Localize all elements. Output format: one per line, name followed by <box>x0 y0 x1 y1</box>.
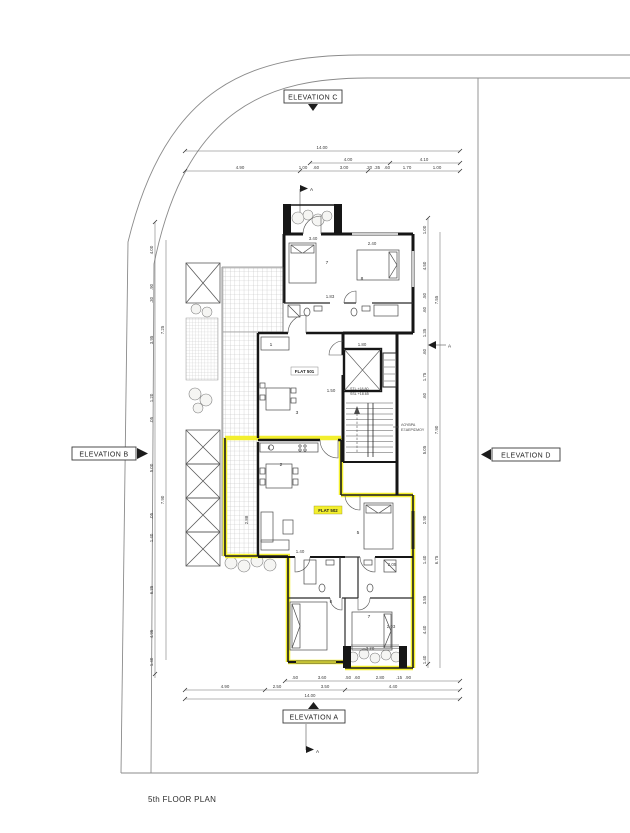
flat-502-label: FLAT 502 <box>318 508 338 513</box>
room-number: 8 <box>361 276 364 282</box>
dimension-labels-right: 1.00 4.50 .50 .60 1.35 .60 1.75 .60 5.05… <box>422 225 439 664</box>
plan-dim: 3.40 <box>309 236 318 241</box>
dim-label: 1.40 <box>149 533 154 542</box>
room-number: 3 <box>296 410 299 416</box>
dim-label: .60 <box>384 165 391 170</box>
dim-label: .05 <box>149 416 154 423</box>
dim-label: 7.90 <box>434 425 439 434</box>
dim-label: 3.55 <box>422 595 427 604</box>
dim-label: 3.95 <box>149 335 154 344</box>
dim-label: 6.75 <box>434 555 439 564</box>
dim-label: 14.00 <box>305 693 317 698</box>
dim-label: .05 <box>149 512 154 519</box>
elevation-c-label: ELEVATION C <box>288 95 338 102</box>
dim-label: 14.00 <box>317 145 329 150</box>
dim-label: 3.60 <box>318 675 327 680</box>
dim-label: 1.70 <box>403 165 412 170</box>
dim-label: 4.00 <box>344 157 353 162</box>
dim-label: 2.80 <box>376 675 385 680</box>
dimension-labels-left: 4.00 .90 .30 3.95 1.20 .05 5.00 .05 1.40… <box>149 245 165 666</box>
level-label-stl: STL +18.80 <box>350 387 369 391</box>
level-label-ssl: SSL +18.65 <box>350 392 369 396</box>
furniture-lower-flat <box>260 443 396 650</box>
dim-label: .90 <box>405 675 412 680</box>
dim-label: .60 <box>422 348 427 355</box>
dim-label: 4.40 <box>422 625 427 634</box>
dim-label: 4.90 <box>221 684 230 689</box>
dim-label: .30 <box>149 296 154 303</box>
stair-direction-arrow-icon <box>354 406 360 414</box>
dim-label: .50 <box>292 675 299 680</box>
dim-label: 4.95 <box>149 629 154 638</box>
plan-dim: 2.05 <box>388 562 397 567</box>
dimension-labels-top: 14.00 4.00 4.10 4.90 1.00 .60 3.00 .20 .… <box>236 145 442 170</box>
dim-label: 1.75 <box>422 372 427 381</box>
dim-label: .50 <box>345 675 352 680</box>
dimension-labels-bottom: .50 3.60 .50 .60 2.80 .15 .90 4.90 2.50 … <box>221 675 412 698</box>
dim-label: .60 <box>354 675 361 680</box>
section-arrow-bottom-icon <box>306 746 314 753</box>
dim-label: 3.00 <box>340 165 349 170</box>
section-marker-top: A <box>310 187 314 192</box>
staircase <box>346 403 393 457</box>
floor-plan-sheet: ELEVATION C ELEVATION B ELEVATION D ELEV… <box>0 0 630 833</box>
dim-label: 1.40 <box>422 555 427 564</box>
elevation-b-label: ELEVATION B <box>79 452 128 459</box>
elevation-c-arrow-icon <box>308 104 318 111</box>
plan-dim: 3.20 <box>366 646 375 651</box>
dim-label: 1.35 <box>422 328 427 337</box>
louvre-label-line1: ΛΟΥΒΡΑ <box>401 423 416 427</box>
section-arrow-top-icon <box>300 185 308 192</box>
room-number: 6 <box>330 599 333 605</box>
flat-501-label: FLAT 501 <box>295 369 315 374</box>
dim-label: .50 <box>422 292 427 299</box>
dim-label: 4.40 <box>389 684 398 689</box>
dim-label: .60 <box>313 165 320 170</box>
elevation-d-label: ELEVATION D <box>501 453 551 460</box>
dim-label: 1.00 <box>299 165 308 170</box>
section-marker-bottom: A <box>316 749 320 754</box>
dim-label: 6.35 <box>149 585 154 594</box>
plan-dim: 1.50 <box>327 388 336 393</box>
dimension-lines <box>153 149 462 701</box>
dim-label: .60 <box>422 392 427 399</box>
dim-label: .60 <box>422 306 427 313</box>
dim-label: 7.90 <box>160 495 165 504</box>
dim-label: 1.00 <box>433 165 442 170</box>
louvre-label-line2: ΕΞΑΕΡΙΣΜΟΥ <box>401 428 425 432</box>
elevation-a-label: ELEVATION A <box>290 715 339 722</box>
dim-label: 2.90 <box>422 515 427 524</box>
elevation-a-arrow-icon <box>308 702 319 709</box>
dim-label: 1.20 <box>149 393 154 402</box>
dim-label: 5.00 <box>149 463 154 472</box>
room-number: 7 <box>368 614 371 620</box>
room-number: 2 <box>280 462 283 468</box>
plan-dim: 1.80 <box>358 342 367 347</box>
dim-label: 4.00 <box>149 245 154 254</box>
dim-label: .15 <box>396 675 403 680</box>
plan-dim: 2.40 <box>368 241 377 246</box>
dim-label: 1.40 <box>422 655 427 664</box>
section-arrow-side-icon <box>428 341 436 349</box>
floor-plan-drawing: ELEVATION C ELEVATION B ELEVATION D ELEV… <box>0 0 630 833</box>
room-number: 7 <box>326 260 329 266</box>
elevation-labels: ELEVATION C ELEVATION B ELEVATION D ELEV… <box>72 90 560 723</box>
room-number: 4 <box>268 445 271 451</box>
dim-label: 4.10 <box>420 157 429 162</box>
elevation-d-arrow-icon <box>481 449 491 460</box>
elevator <box>344 349 396 391</box>
dim-label: .35 <box>374 165 381 170</box>
plan-dim: 1.83 <box>326 294 335 299</box>
plan-dim: 2.88 <box>244 515 249 524</box>
room-number: 1 <box>270 342 273 348</box>
dim-label: 7.25 <box>160 325 165 334</box>
dim-label: 7.55 <box>434 295 439 304</box>
dim-label: 2.50 <box>273 684 282 689</box>
dim-label: 5.05 <box>422 445 427 454</box>
dim-label: 4.90 <box>236 165 245 170</box>
dim-label: .90 <box>149 283 154 290</box>
plan-dim: 1.40 <box>296 549 305 554</box>
dim-label: 4.50 <box>422 261 427 270</box>
room-number: 5 <box>357 530 360 536</box>
dim-label: 3.50 <box>321 684 330 689</box>
dim-label: .20 <box>366 165 373 170</box>
section-marker-side: A <box>448 344 452 349</box>
plan-dim: 2.03 <box>387 624 396 629</box>
sheet-title: 5th FLOOR PLAN <box>148 795 216 804</box>
elevation-b-arrow-icon <box>137 448 148 459</box>
dim-label: 1.40 <box>149 657 154 666</box>
dim-label: 1.00 <box>422 225 427 234</box>
